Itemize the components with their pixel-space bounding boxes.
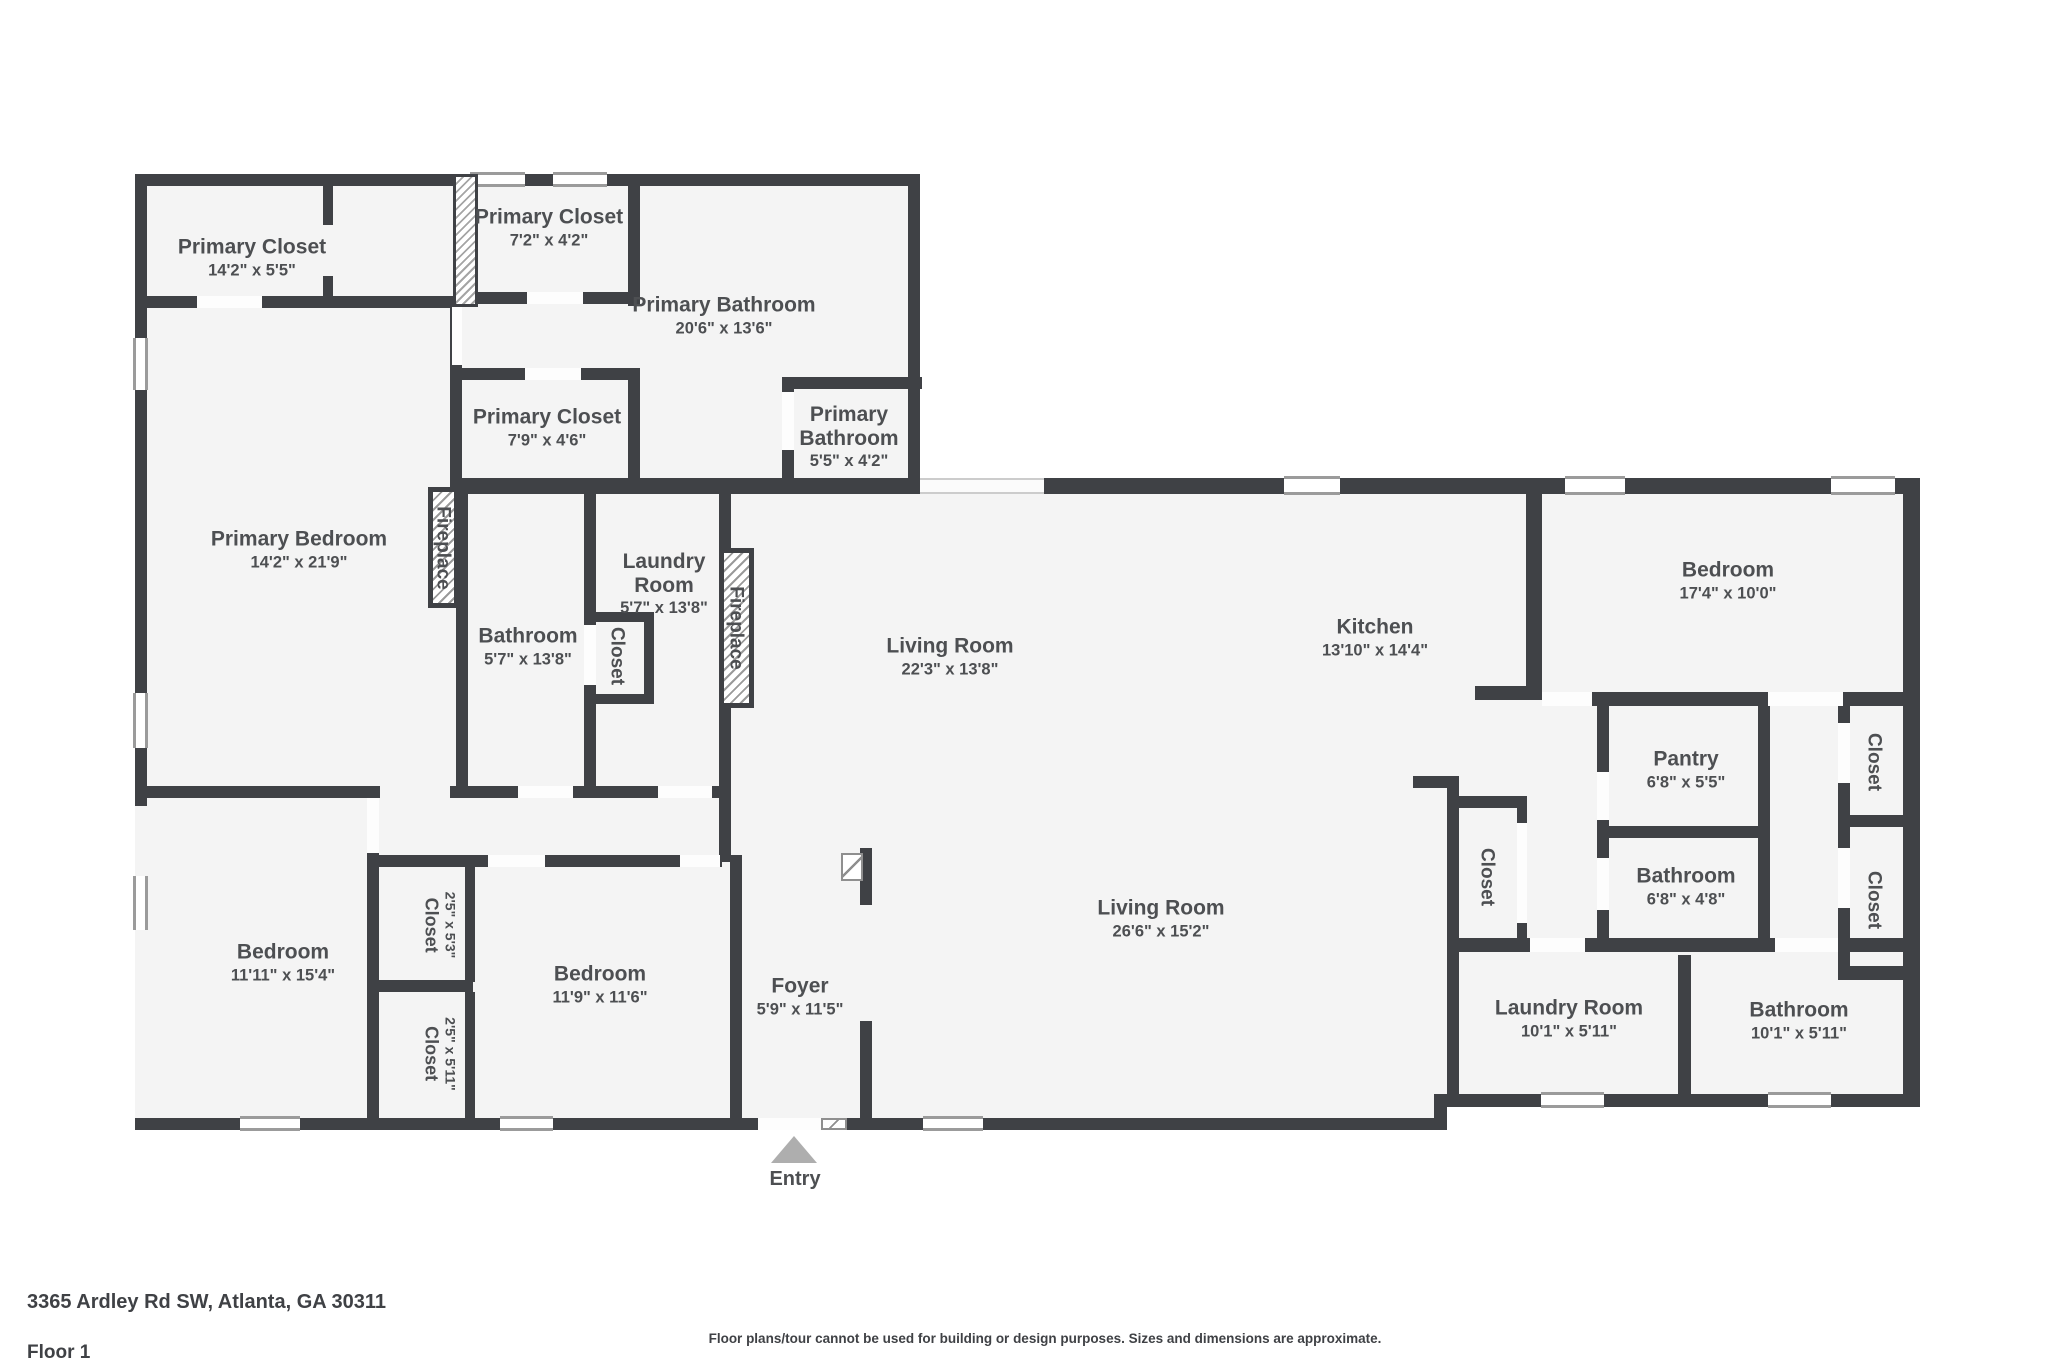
wall bbox=[1434, 1094, 1447, 1130]
window bbox=[923, 1116, 983, 1131]
door-opening bbox=[367, 798, 379, 853]
entry-arrow-icon bbox=[771, 1136, 817, 1163]
wall-opening bbox=[920, 478, 1044, 494]
wall bbox=[377, 980, 473, 992]
window bbox=[1541, 1092, 1604, 1108]
wall bbox=[1678, 955, 1691, 1096]
room-label-bathroom-3: Bathroom10'1" x 5'11" bbox=[1749, 999, 1848, 1044]
wall bbox=[450, 478, 1920, 494]
room-label-laundry-room-1: Laundry Room5'7" x 13'8" bbox=[605, 550, 723, 618]
room-area bbox=[731, 494, 1447, 1130]
door-opening bbox=[1838, 848, 1850, 908]
wall bbox=[908, 174, 920, 490]
door-opening bbox=[1530, 938, 1585, 952]
room-label-closet-3: Closet bbox=[1863, 871, 1884, 929]
wall bbox=[135, 296, 460, 308]
door-opening bbox=[658, 786, 712, 798]
door-opening bbox=[488, 855, 545, 867]
wall bbox=[644, 612, 654, 704]
wall bbox=[1838, 815, 1908, 827]
door-opening bbox=[527, 292, 583, 304]
door-leaf-icon bbox=[821, 1118, 847, 1130]
wall bbox=[860, 1021, 872, 1130]
door-opening bbox=[452, 307, 462, 365]
room-label-primary-closet-2: Primary Closet7'2" x 4'2" bbox=[475, 206, 623, 251]
wall bbox=[1758, 700, 1770, 938]
door-opening bbox=[584, 625, 596, 685]
door-opening bbox=[1597, 772, 1609, 820]
wall bbox=[742, 1118, 1447, 1130]
room-label-primary-closet-3: Primary Closet7'9" x 4'6" bbox=[473, 406, 621, 451]
door-opening bbox=[758, 1118, 825, 1130]
room-label-bathroom-1: Bathroom5'7" x 13'8" bbox=[478, 625, 577, 670]
wall bbox=[465, 867, 475, 982]
floor-number: Floor 1 bbox=[27, 1342, 90, 1364]
room-label-closet-2: Closet bbox=[1863, 733, 1884, 791]
room-label-primary-bathroom-1: Primary Bathroom20'6" x 13'6" bbox=[632, 294, 815, 339]
window bbox=[133, 338, 148, 390]
wall bbox=[135, 1118, 742, 1130]
room-label-primary-bedroom: Primary Bedroom14'2" x 21'9" bbox=[211, 528, 387, 573]
window bbox=[470, 172, 525, 187]
wall bbox=[628, 368, 640, 490]
room-label-bedroom-3: Bedroom11'9" x 11'6" bbox=[552, 963, 647, 1008]
wall bbox=[135, 786, 380, 798]
room-label-closet-4: Closet bbox=[1476, 848, 1497, 906]
room-label-primary-bathroom-2: Primary Bathroom5'5" x 4'2" bbox=[790, 403, 908, 471]
door-leaf-icon bbox=[841, 853, 863, 881]
window bbox=[1565, 476, 1625, 495]
room-label-kitchen: Kitchen13'10" x 14'4" bbox=[1322, 616, 1428, 661]
door-opening bbox=[1542, 692, 1592, 706]
door-opening bbox=[1768, 692, 1843, 706]
property-address: 3365 Ardley Rd SW, Atlanta, GA 30311 bbox=[27, 1291, 386, 1314]
door-opening bbox=[1838, 723, 1850, 783]
door-opening bbox=[525, 368, 581, 380]
wall bbox=[1526, 478, 1542, 692]
door-opening bbox=[1517, 823, 1527, 923]
wall bbox=[1597, 826, 1770, 838]
wall bbox=[1447, 1094, 1920, 1107]
window bbox=[1768, 1092, 1831, 1108]
room-label-living-room-1: Living Room22'3" x 13'8" bbox=[886, 635, 1013, 680]
room-label-fireplace-1: Fireplace bbox=[432, 506, 453, 589]
window bbox=[1831, 476, 1895, 495]
room-label-living-room-2: Living Room26'6" x 15'2" bbox=[1097, 897, 1224, 942]
room-label-fireplace-2: Fireplace bbox=[725, 586, 746, 669]
room-label-laundry-room-2: Laundry Room10'1" x 5'11" bbox=[1495, 997, 1643, 1042]
room-label-pantry: Pantry6'8" x 5'5" bbox=[1647, 748, 1726, 793]
wall bbox=[1838, 966, 1908, 980]
door-opening bbox=[1597, 858, 1609, 910]
wall bbox=[730, 855, 742, 1130]
wall bbox=[377, 855, 722, 867]
window bbox=[1284, 476, 1340, 495]
window bbox=[133, 876, 148, 930]
wall bbox=[323, 174, 333, 225]
wall bbox=[628, 174, 640, 306]
window bbox=[240, 1116, 300, 1131]
wall bbox=[782, 377, 922, 389]
window bbox=[553, 172, 607, 187]
wall bbox=[1447, 796, 1525, 808]
door-opening bbox=[197, 296, 262, 308]
window bbox=[500, 1116, 553, 1131]
room-label-primary-closet-1: Primary Closet14'2" x 5'5" bbox=[178, 236, 326, 281]
room-label-foyer: Foyer5'9" x 11'5" bbox=[757, 975, 844, 1020]
door-opening bbox=[1775, 938, 1838, 952]
room-label-bathroom-2: Bathroom6'8" x 4'8" bbox=[1636, 865, 1735, 910]
wall bbox=[1475, 686, 1542, 700]
disclaimer-text: Floor plans/tour cannot be used for buil… bbox=[709, 1331, 1382, 1346]
room-label-closet-5: Closet2'5" x 5'3" bbox=[421, 892, 458, 959]
door-opening bbox=[518, 786, 573, 798]
room-label-bedroom-1: Bedroom17'4" x 10'0" bbox=[1680, 559, 1777, 604]
room-label-closet-6: Closet2'5" x 5'11" bbox=[421, 1017, 458, 1091]
floor-plan-page: Primary Closet14'2" x 5'5" Primary Close… bbox=[0, 0, 2048, 1365]
entry-label: Entry bbox=[769, 1168, 820, 1191]
wall bbox=[135, 174, 920, 186]
door-opening bbox=[680, 855, 720, 867]
wall bbox=[465, 992, 475, 1118]
room-label-bedroom-2: Bedroom11'11" x 15'4" bbox=[231, 941, 335, 986]
room-label-closet-1: Closet bbox=[606, 627, 627, 685]
window bbox=[133, 693, 148, 748]
wall bbox=[1903, 478, 1920, 1107]
